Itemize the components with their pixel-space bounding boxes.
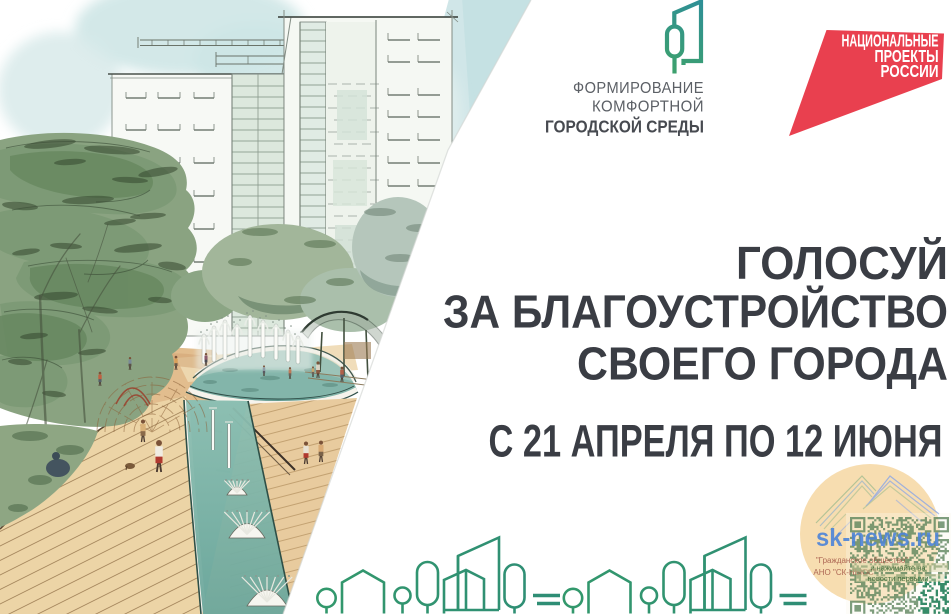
svg-text:ФОРМИРОВАНИЕ: ФОРМИРОВАНИЕ — [573, 80, 704, 97]
svg-text:КОМФОРТНОЙ: КОМФОРТНОЙ — [592, 97, 704, 116]
svg-text:СВОЕГО ГОРОДА: СВОЕГО ГОРОДА — [577, 338, 948, 390]
svg-text:новости первыми: новости первыми — [868, 574, 929, 583]
svg-text:ГОРОДСКОЙ СРЕДЫ: ГОРОДСКОЙ СРЕДЫ — [545, 116, 704, 137]
svg-text:и нажимайте на: и нажимайте на — [870, 564, 926, 573]
svg-text:С 21 АПРЕЛЯ ПО 12 ИЮНЯ: С 21 АПРЕЛЯ ПО 12 ИЮНЯ — [489, 416, 943, 467]
svg-text:ЗА БЛАГОУСТРОЙСТВО: ЗА БЛАГОУСТРОЙСТВО — [443, 286, 948, 338]
svg-text:sk-news.ru: sk-news.ru — [816, 524, 940, 552]
svg-text:ГОЛОСУЙ: ГОЛОСУЙ — [736, 237, 948, 289]
svg-text:РОССИИ: РОССИИ — [881, 61, 939, 81]
